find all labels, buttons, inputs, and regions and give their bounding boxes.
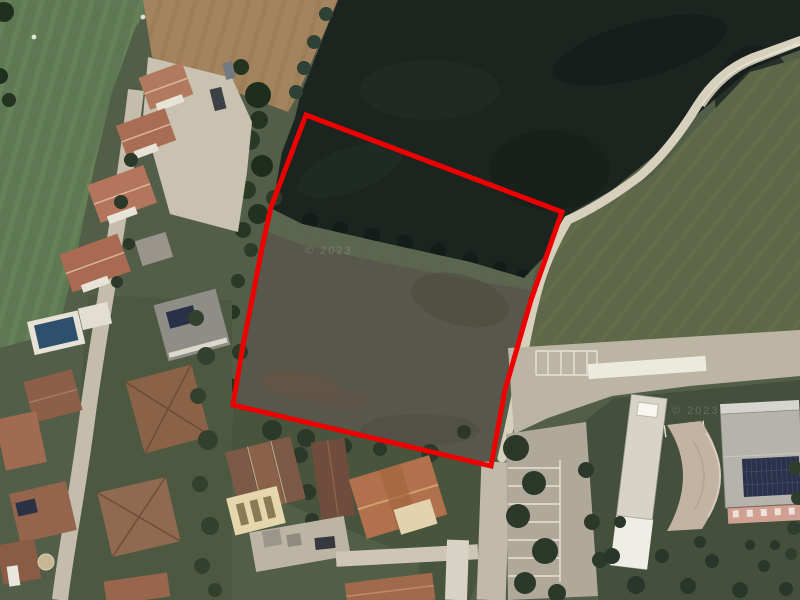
aerial-photo: © 2023 © 2023 <box>0 0 800 600</box>
watermark-text: © 2023 <box>305 245 353 257</box>
access-street <box>477 462 511 600</box>
house-roof <box>0 539 41 585</box>
watermark-text: © 2023 <box>672 405 720 417</box>
parked-car <box>314 536 335 550</box>
satellite-map-view: © 2023 © 2023 <box>0 0 800 600</box>
main-building <box>720 400 800 524</box>
footpath <box>445 540 469 600</box>
